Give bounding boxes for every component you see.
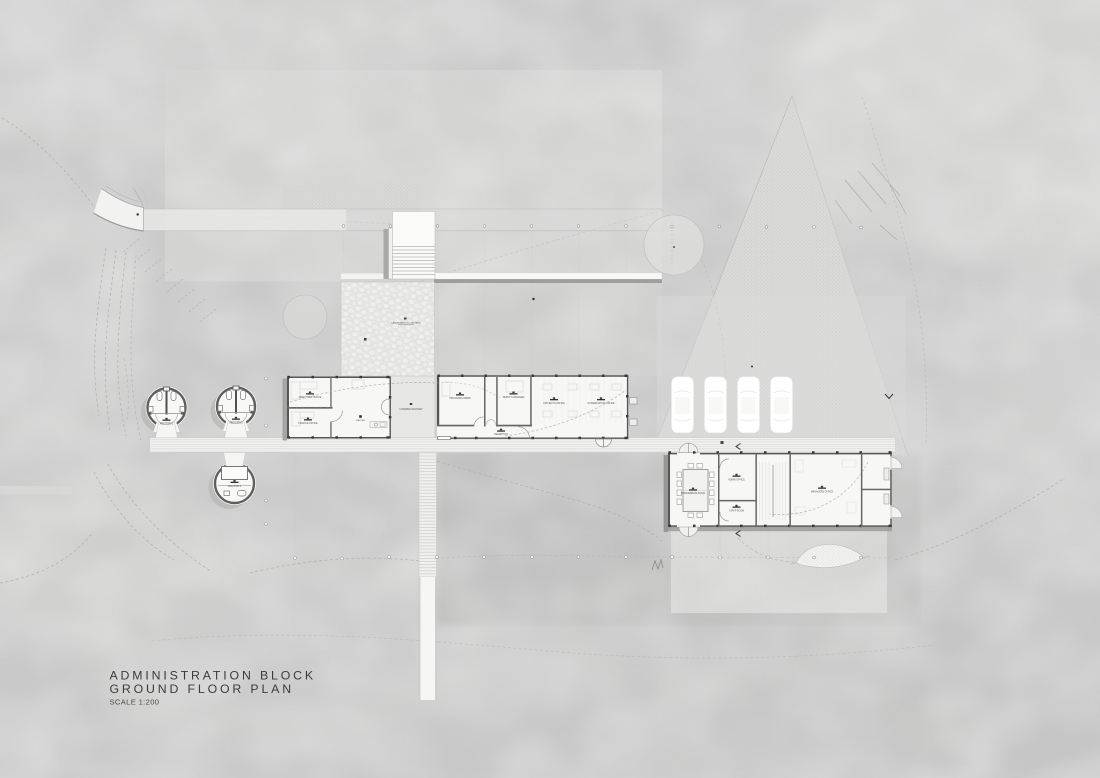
svg-text:ABLUTION 1: ABLUTION 1	[160, 423, 174, 426]
svg-text:GROUND FLOOR PLAN: GROUND FLOOR PLAN	[110, 682, 294, 696]
svg-text:MANAGERS OFFICE: MANAGERS OFFICE	[811, 490, 834, 493]
svg-text:ADMINISTRATION BLOCK: ADMINISTRATION BLOCK	[110, 669, 316, 683]
svg-text:WAITING: WAITING	[356, 419, 366, 422]
svg-text:ADMIN OFFICE: ADMIN OFFICE	[728, 478, 745, 481]
svg-text:DEPUTY MANAGER: DEPUTY MANAGER	[503, 396, 525, 399]
svg-text:CONSERVATION OFFICE: CONSERVATION OFFICE	[587, 402, 615, 405]
svg-text:STAFF ROOM: STAFF ROOM	[729, 509, 744, 512]
svg-text:COVERED WALKWAY: COVERED WALKWAY	[399, 408, 423, 411]
svg-text:LANDSCAPED COURTYARD: LANDSCAPED COURTYARD	[391, 322, 421, 325]
svg-text:DIRECTORS OFFICE: DIRECTORS OFFICE	[299, 397, 322, 399]
svg-text:ABLUTION 3: ABLUTION 3	[228, 485, 242, 488]
svg-text:PROGRAMS ADMIN: PROGRAMS ADMIN	[449, 397, 471, 400]
svg-text:SCALE 1:200: SCALE 1:200	[110, 698, 160, 707]
svg-text:PROJECTS OFFICE: PROJECTS OFFICE	[543, 403, 565, 405]
svg-text:CONFERENCE ROOM: CONFERENCE ROOM	[681, 493, 705, 495]
svg-text:ABLUTION 2: ABLUTION 2	[229, 422, 243, 425]
svg-text:FINANCE OFFICE: FINANCE OFFICE	[298, 422, 318, 425]
